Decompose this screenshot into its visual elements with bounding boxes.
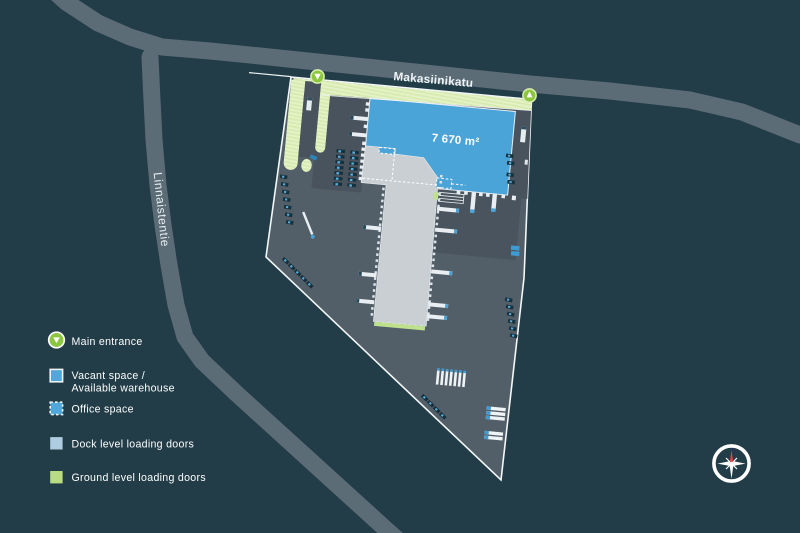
svg-text:Ground level loading doors: Ground level loading doors xyxy=(72,472,206,484)
svg-text:Vacant space /: Vacant space / xyxy=(72,370,146,382)
svg-text:Office space: Office space xyxy=(72,403,134,415)
svg-text:Main entrance: Main entrance xyxy=(72,336,143,348)
svg-text:Available warehouse: Available warehouse xyxy=(72,382,175,394)
svg-text:Dock level loading doors: Dock level loading doors xyxy=(72,438,195,450)
